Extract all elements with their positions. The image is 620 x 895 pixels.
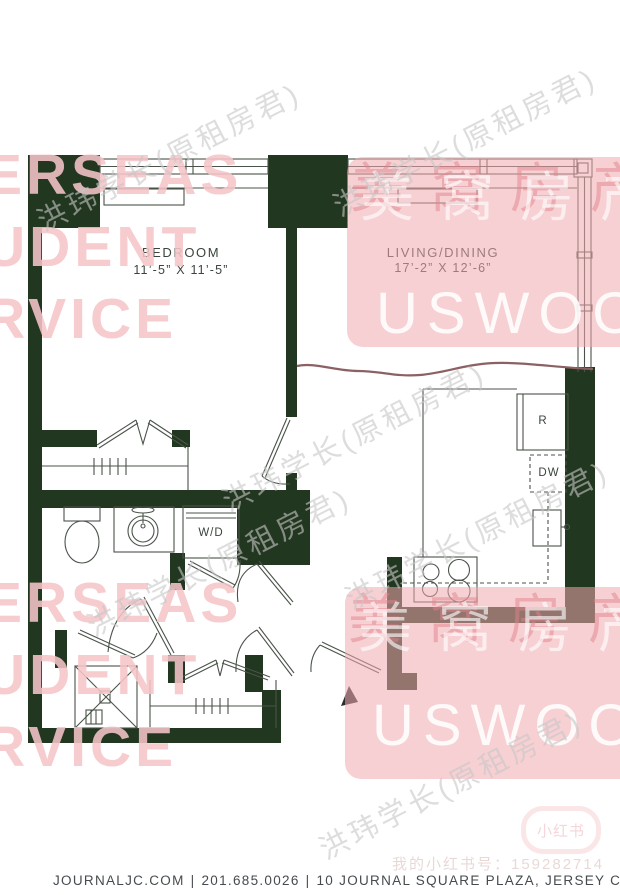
xiaohongshu-badge-text: 小红书	[537, 820, 585, 841]
xiaohongshu-badge: 小红书	[521, 806, 601, 854]
hall-door-lower	[236, 627, 294, 676]
washer-dryer-label: W/D	[193, 527, 229, 539]
xiaohongshu-id-watermark: 我的小红书号：159282714	[392, 853, 604, 874]
footer-website: JOURNALJC.COM	[53, 873, 185, 888]
bathroom-sink	[114, 507, 174, 552]
pink-watermark-line: UDENT	[0, 219, 200, 276]
brand-cn: 美窝房产	[358, 602, 620, 656]
footer-address: 10 JOURNAL SQUARE PLAZA, JERSEY CITY, NJ…	[316, 873, 620, 888]
pink-watermark-line: RVICE	[0, 291, 177, 348]
toilet	[64, 507, 100, 563]
footer-divider: |	[185, 873, 202, 888]
refrigerator-label: R	[533, 415, 553, 427]
footer-divider: |	[300, 873, 317, 888]
hall-door-upper	[237, 561, 293, 605]
brand-watermark-panel-bottom: 美窝房产 美窝房产 USWOO	[345, 587, 620, 779]
pink-watermark-line: UDENT	[0, 647, 200, 704]
brand-en: USWOO	[376, 285, 620, 343]
pink-watermark-line: RVICE	[0, 719, 177, 776]
footer-contact-bar: JOURNALJC.COM|201.685.0026|10 JOURNAL SQ…	[53, 873, 620, 888]
footer-phone: 201.685.0026	[201, 873, 299, 888]
floor-plan-page: BEDROOM 11’-5” X 11’-5” LIVING/DINING 17…	[0, 0, 620, 895]
